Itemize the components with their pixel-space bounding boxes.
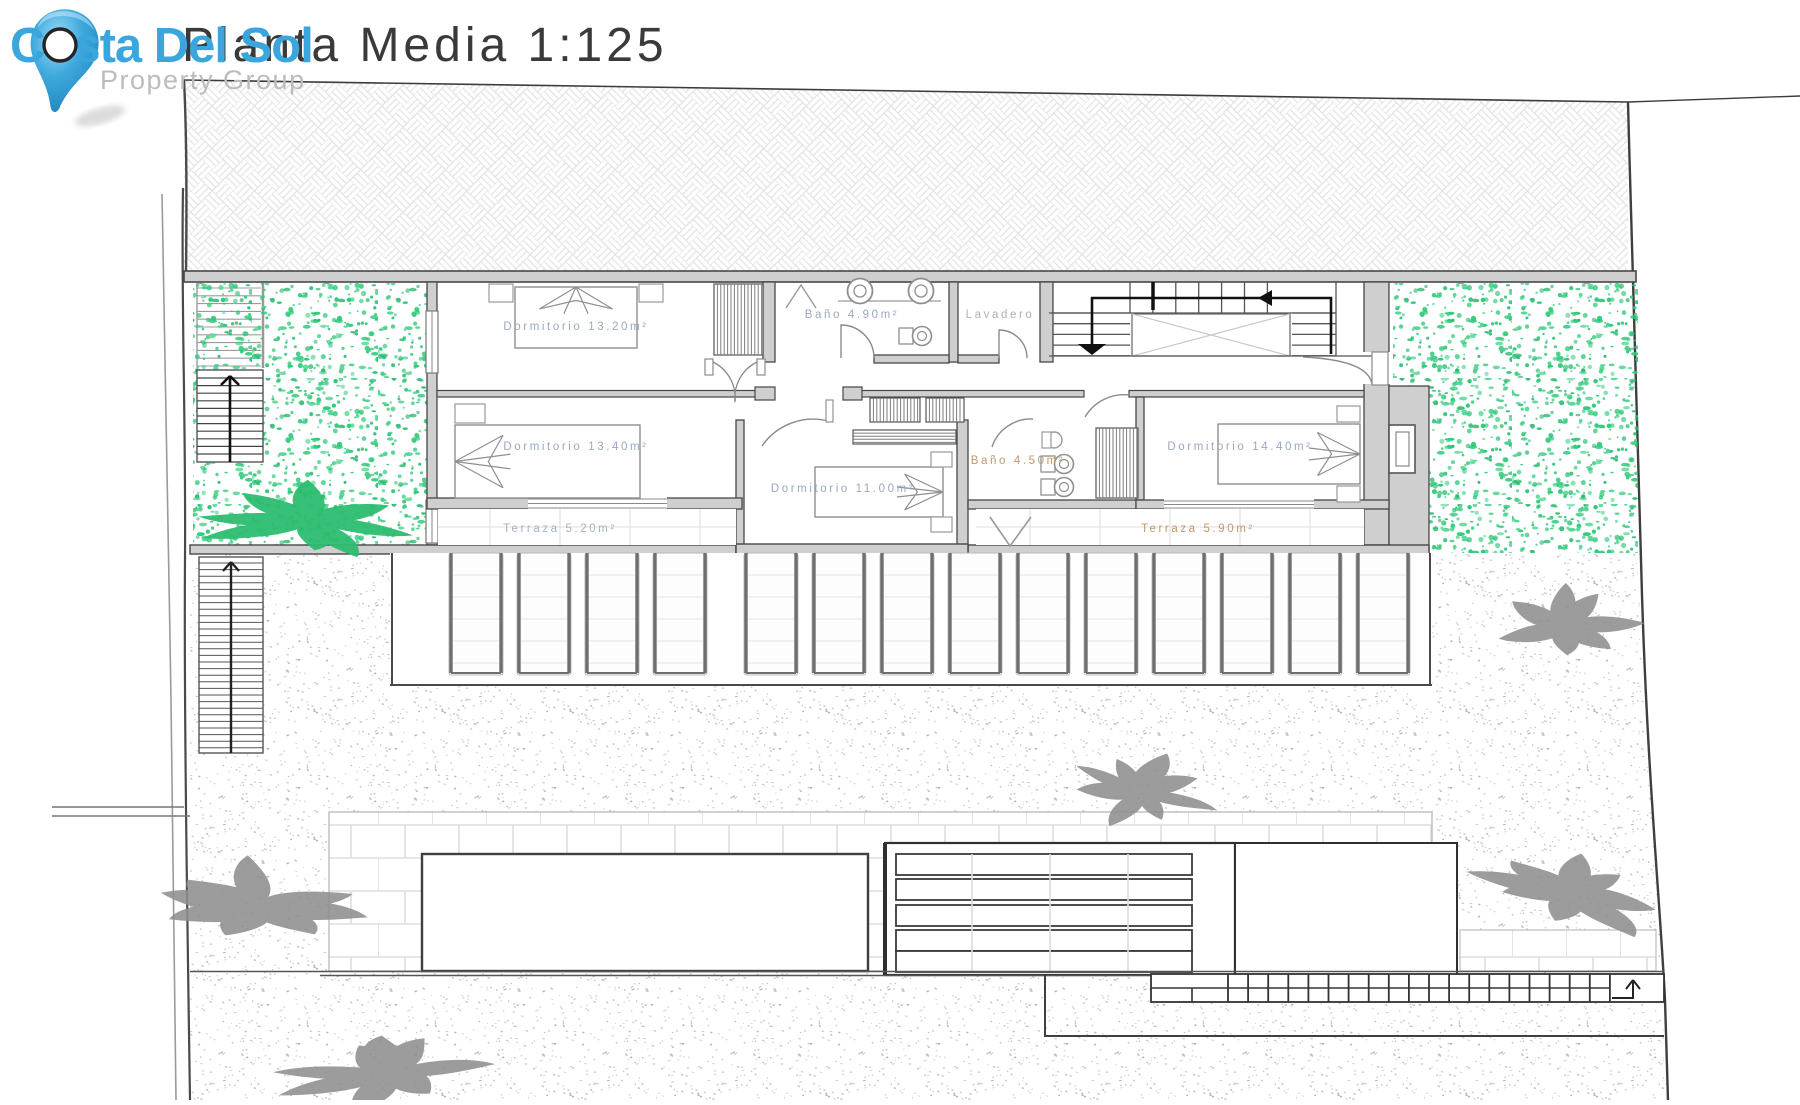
- svg-text:Dormitorio 13.20m²: Dormitorio 13.20m²: [503, 321, 648, 333]
- svg-text:Baño 4.50m²: Baño 4.50m²: [971, 455, 1065, 467]
- svg-text:Terraza 5.90m²: Terraza 5.90m²: [1141, 523, 1255, 535]
- svg-text:Dormitorio 14.40m²: Dormitorio 14.40m²: [1167, 441, 1312, 453]
- svg-text:Dormitorio 11.00m²: Dormitorio 11.00m²: [771, 483, 915, 495]
- svg-text:Terraza 5.20m²: Terraza 5.20m²: [503, 523, 617, 535]
- svg-text:Lavadero: Lavadero: [966, 309, 1035, 321]
- svg-text:Dormitorio 13.40m²: Dormitorio 13.40m²: [503, 441, 648, 453]
- svg-text:Property Group: Property Group: [100, 65, 306, 95]
- svg-text:Baño 4.90m²: Baño 4.90m²: [805, 309, 899, 321]
